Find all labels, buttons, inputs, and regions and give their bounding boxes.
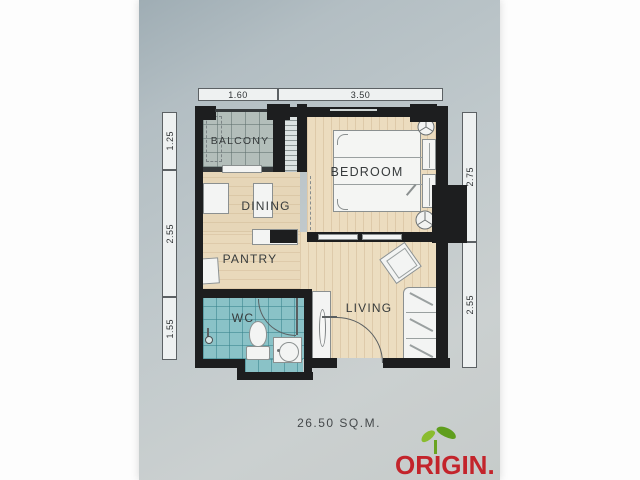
sofa-fold-line (410, 292, 434, 306)
sink-basin-icon (279, 342, 299, 362)
room-label-pantry: PANTRY (223, 252, 278, 266)
room-label-balcony: BALCONY (211, 135, 270, 147)
entrance-door-panel (312, 291, 331, 363)
dining-bench-icon (203, 183, 229, 214)
wall-bottom-wc (195, 359, 243, 368)
sofa-fold-line (410, 344, 434, 358)
door-leaf-line (322, 316, 337, 318)
leaf-stem-icon (434, 440, 437, 454)
wall-bottom-living (383, 358, 450, 368)
dim-right-2: 2.55 (462, 242, 477, 368)
wardrobe-line (429, 178, 430, 206)
wall-wc-right (304, 289, 312, 372)
wall-wc-top (195, 289, 312, 298)
bed-sheet-line (334, 184, 422, 185)
dim-left-1: 1.25 (162, 112, 177, 170)
wall-bottom-door-stub (312, 358, 337, 368)
balcony-railing (215, 109, 269, 112)
area-size-text: 26.50 SQ.M. (297, 416, 381, 430)
wall-column-block-right (432, 185, 467, 243)
dim-top-2: 3.50 (278, 88, 443, 101)
wall-corner-top-right (410, 104, 437, 122)
wardrobe-line (429, 143, 430, 168)
pillow-icon (337, 134, 348, 145)
wc-door-leaf-line (296, 297, 298, 335)
room-label-dining: DINING (241, 199, 290, 213)
dim-left-2: 2.55 (162, 170, 177, 297)
sofa-fold-line (410, 318, 434, 332)
bed-sheet-line (334, 157, 422, 158)
bedroom-sliding-door (362, 234, 402, 240)
corridor-dashed-line (310, 176, 311, 230)
room-label-wc: WC (232, 311, 254, 325)
floorplan-screenshot: 1.60 3.50 1.25 2.55 1.55 2.75 2.55 (0, 0, 640, 480)
wall-left (195, 106, 203, 368)
dim-top-1: 1.60 (198, 88, 278, 101)
shower-drain-icon (205, 336, 213, 344)
floorplan-photo-paper: 1.60 3.50 1.25 2.55 1.55 2.75 2.55 (139, 0, 500, 480)
dim-left-3: 1.55 (162, 297, 177, 360)
wall-entry-left (273, 104, 285, 172)
pillow-icon (337, 199, 348, 210)
wall-entry-right (297, 104, 307, 172)
door-handle-lens (319, 309, 326, 347)
bedroom-window-line (330, 109, 377, 111)
blanket-fold-line (406, 184, 416, 196)
room-label-bedroom: BEDROOM (331, 165, 404, 179)
toilet-tank-icon (246, 346, 270, 360)
leaf-right-icon (435, 424, 458, 441)
wall-wc-bay-bottom (237, 372, 313, 380)
wardrobe-icon (422, 139, 436, 170)
sink-tap-dot (277, 349, 280, 352)
sink-counter-icon (273, 337, 302, 363)
room-label-living: LIVING (346, 301, 393, 315)
balcony-sliding-door (222, 165, 262, 173)
entry-shelf-area (285, 111, 297, 171)
wall-kitchen-stub (270, 230, 297, 243)
bedroom-sliding-door (318, 234, 358, 240)
origin-logo-text: ORIGIN. (395, 450, 495, 480)
